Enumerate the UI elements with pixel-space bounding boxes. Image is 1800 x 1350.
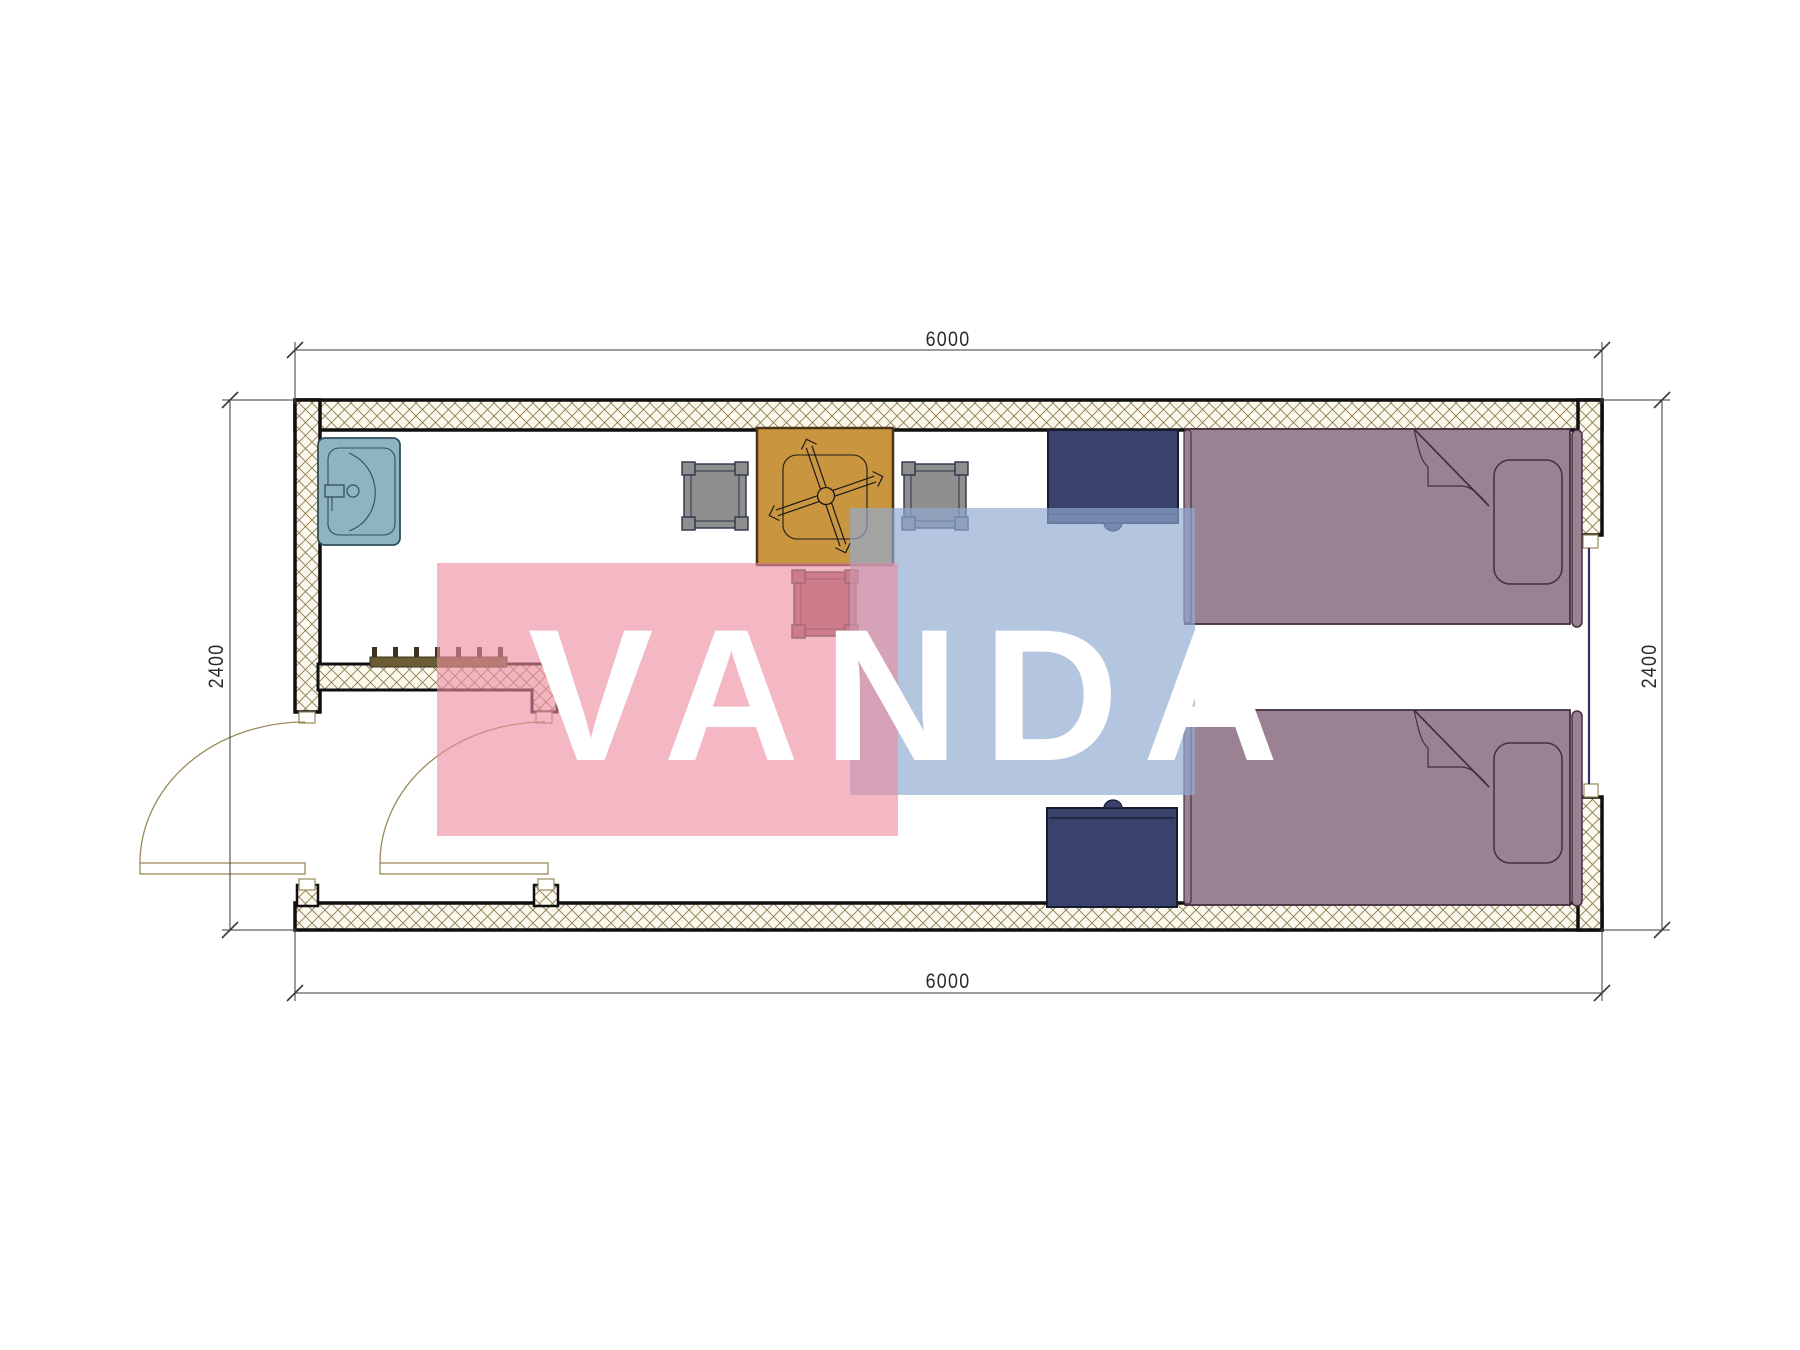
- bedside-cabinet-bottom: [1047, 800, 1177, 907]
- dimension-label-top: 6000: [926, 328, 971, 352]
- cabinet-knob: [1104, 800, 1122, 808]
- bed-headboard: [1572, 711, 1582, 906]
- cap-bottom-pier-left: [299, 879, 315, 890]
- bed-pillow: [1494, 743, 1562, 863]
- wall-top: [295, 400, 1602, 430]
- dimension-label-left: 2400: [205, 644, 229, 689]
- hook-tooth: [414, 647, 419, 658]
- cap-bottom-pier-right: [538, 879, 554, 890]
- wall-bottom: [295, 903, 1602, 930]
- watermark-text: VANDA: [528, 601, 1303, 789]
- cap-left-wall: [299, 712, 315, 723]
- dimension-label-bottom: 6000: [926, 970, 971, 994]
- door-leaf-inner: [380, 863, 548, 874]
- door-swing-left: [140, 722, 305, 863]
- dimension-label-right: 2400: [1638, 644, 1662, 689]
- bed-headboard: [1572, 430, 1582, 627]
- bed-pillow: [1494, 460, 1562, 584]
- sink-tap: [325, 485, 344, 497]
- hook-tooth: [393, 647, 398, 658]
- sink: [318, 438, 400, 545]
- door-leaf-left: [140, 863, 305, 874]
- wall-left: [295, 400, 320, 712]
- floor-plan-page: VANDA 6000 6000 2400 2400: [0, 0, 1800, 1350]
- hook-tooth: [372, 647, 377, 658]
- cap-right-wall-upper: [1583, 535, 1598, 548]
- cap-right-wall-lower: [1584, 784, 1598, 797]
- chair-gray-left: [682, 462, 748, 530]
- sink-drain: [347, 485, 359, 497]
